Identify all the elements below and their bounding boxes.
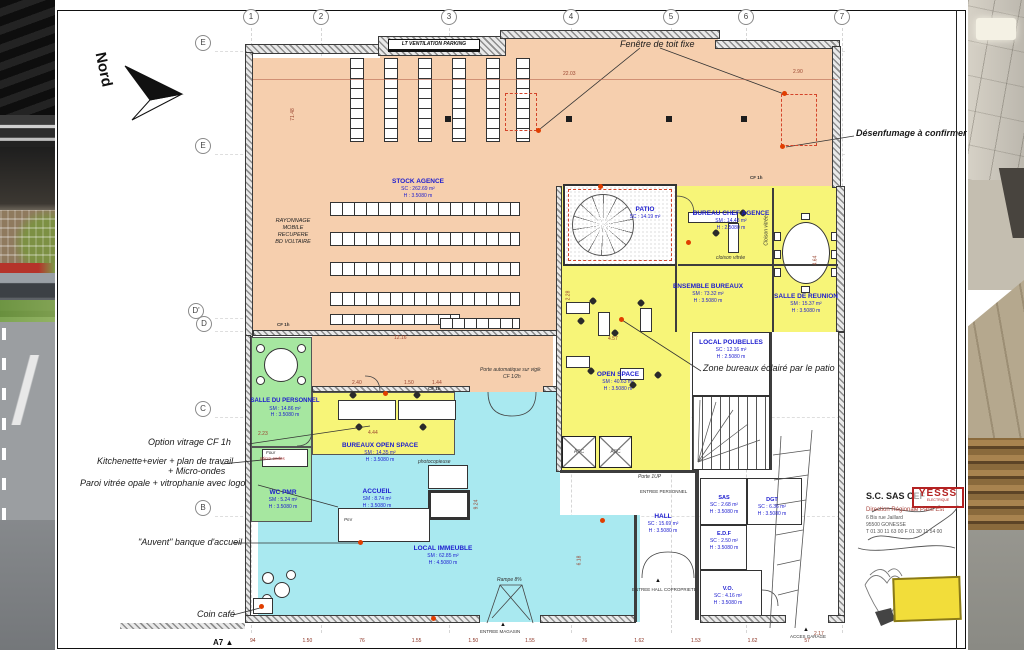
floor-plan-screenshot: ASC ASC (0, 0, 1024, 650)
yesss-stamp: YESSS ELECTRIQUE (912, 487, 964, 508)
grid-bubble-7: 7 (834, 9, 850, 25)
sheet-ref: A7 ▲ (213, 639, 233, 647)
sheet-ref-text: A7 (213, 638, 223, 647)
label-patio: PATIO SC : 14.19 m² (630, 206, 661, 221)
stamp-subtext: ELECTRIQUE (914, 499, 962, 503)
room-area: SM : 8.74 m² (363, 496, 392, 503)
room-height: H : 2.5080 m (693, 225, 770, 232)
annotation-text: Porte 1UP (638, 474, 661, 480)
grid-bubble-B: B (195, 500, 211, 516)
four-label: Four (266, 450, 275, 455)
annotation-rampe: Rampe 8% (497, 578, 522, 583)
dim-228: 2.28 (566, 291, 571, 301)
label-cf1h-a: CF 1h (277, 323, 290, 328)
annotation-porte-auto-cf: CF 1/2h (503, 375, 521, 380)
tb-line1: Direction Régionale Paris Est (866, 507, 944, 513)
annotation-kitchenette: Kitchenette+evier + plan de travail (97, 457, 233, 466)
room-height: H : 3.5080 m (342, 457, 418, 464)
label-cf1h-b: CF 1h (750, 176, 763, 181)
micro-label: Micro-ondes (260, 456, 285, 461)
grid-1: 1 (249, 13, 253, 21)
rayonnage-l1: RAYONNAGE (275, 218, 311, 225)
label-salle-personnel: SALLE DU PERSONNEL SM : 14.86 m² H : 3.5… (250, 398, 319, 419)
label-four: Four (266, 451, 275, 456)
grid-5: 5 (669, 13, 673, 21)
annotation-text: Option vitrage CF 1h (148, 437, 231, 447)
room-height: H : 3.5080 m (710, 509, 739, 516)
annotation-text: CF 1/2h (503, 374, 521, 380)
label-hall: HALL SC : 15.69 m² H : 3.5080 m (648, 513, 679, 534)
label-rayonnage: RAYONNAGE MOBILE RECUPERE BD VOLTAIRE (275, 218, 311, 247)
marker-dot (619, 317, 624, 322)
room-area: SC : 15.69 m² (648, 521, 679, 528)
dim-text: 9.24 (473, 500, 479, 510)
label-salle-reunion: SALLE DE REUNION SM : 15.37 m² H : 3.508… (774, 293, 838, 314)
label-vo: V.O. SC : 4.16 m² H : 3.5080 m (714, 586, 743, 606)
room-height: H : 3.5080 m (392, 193, 444, 200)
marker-dot (383, 391, 388, 396)
annotation-cloison-vitree: cloison vitrée (716, 256, 745, 261)
label-cf1h-c: CF 1h (428, 387, 441, 392)
dim-text: 6.18 (576, 556, 582, 566)
label-micro-ondes: Micro-ondes (260, 457, 285, 462)
dim-150: 1.50 (404, 381, 414, 386)
marker-dot (598, 184, 603, 189)
entrance-triangle-garage: ▲ (803, 627, 809, 633)
label-stock-agence: STOCK AGENCE SC : 262.69 m² H : 3.5080 m (392, 178, 444, 199)
label-local-immeuble: LOCAL IMMEUBLE SM : 62.85 m² H : 4.5080 … (414, 545, 473, 566)
grid-bubble-6: 6 (738, 9, 754, 25)
annotation-text: Kitchenette+evier + plan de travail (97, 456, 233, 466)
annotation-entree-magasin: ENTREE MAGASIN (480, 630, 520, 635)
room-name: LOCAL IMMEUBLE (414, 545, 473, 553)
annotation-paroi-vitree: Paroi vitrée opale + vitrophanie avec lo… (80, 479, 245, 488)
marker-dot (600, 518, 605, 523)
grid-bubble-3: 3 (441, 9, 457, 25)
room-height: H : 3.5080 m (673, 298, 743, 305)
grid-Dp: D' (192, 307, 199, 315)
annotation-coin-cafe: Coin café (197, 610, 235, 619)
dim-value: 1.55 (525, 639, 535, 644)
dim-text: 71.48 (290, 108, 296, 121)
room-name: PATIO (630, 206, 661, 214)
dim-text: 2.28 (565, 291, 571, 301)
annotation-text: "Auvent" banque d'accueil (138, 537, 242, 547)
dim-text: 22.03 (563, 71, 576, 77)
dim-7148: 71.48 (291, 108, 296, 121)
titleblock-phone: T 01 30 11 63 00 F 01 30 11 54 00 (866, 530, 942, 535)
grid-bubble-4: 4 (563, 9, 579, 25)
annotation-text: Fenêtre de toit fixe (620, 39, 695, 49)
room-height: H : 4.5080 m (414, 560, 473, 567)
compass-arrow (125, 66, 182, 120)
dim-value: 1.53 (691, 639, 701, 644)
grid-D: D (201, 320, 207, 328)
dim-text: 4.64 (812, 256, 818, 266)
dim-value: 76 (359, 639, 365, 644)
annotation-text: Zone bureaux éclairé par le patio (703, 363, 835, 373)
label-pmr: Pmr (344, 518, 352, 523)
dim-value: 76 (582, 639, 588, 644)
annotation-text: + Micro-ondes (168, 466, 225, 476)
grid-C: C (200, 405, 206, 413)
room-height: H : 3.5080 m (250, 412, 319, 419)
room-height: H : 3.5080 m (648, 528, 679, 535)
room-name: OPEN SPACE (597, 371, 639, 379)
rayonnage-l3: RECUPERE (275, 232, 311, 239)
label-accueil: ACCUEIL SM : 8.74 m² H : 3.5080 m (363, 488, 392, 509)
dim-290: 2.90 (793, 70, 803, 75)
entrance-triangle-magasin: ▲ (500, 622, 506, 628)
annotation-text: ENTREE MAGASIN (480, 629, 520, 634)
label-local-poubelles: LOCAL POUBELLES SC : 12.16 m² H : 2.5080… (699, 339, 763, 360)
label-bureaux-open-space: BUREAUX OPEN SPACE SM : 14.35 m² H : 3.5… (342, 442, 418, 463)
annotation-text: Coin café (197, 609, 235, 619)
marker-dot (782, 91, 787, 96)
label-dgt: DGT SC : 6.36 m² H : 3.5080 m (758, 497, 787, 517)
handwritten-sticky-note (892, 576, 961, 622)
room-name: WC PMR (269, 489, 298, 497)
room-height: H : 3.5080 m (714, 600, 743, 607)
leader-lines (222, 48, 854, 615)
grid-2: 2 (319, 13, 323, 21)
stair-fan-lines (698, 400, 760, 462)
label-sas: SAS SC : 2.68 m² H : 3.5080 m (710, 495, 739, 515)
annotation-text: ENTREE HALL COPROPRIETE (632, 587, 697, 592)
titleblock-direction: Direction Régionale Paris Est (866, 507, 944, 513)
grid-E1: E (200, 39, 205, 47)
marker-dot (358, 540, 363, 545)
tb-line2: 6 Bis rue Jaillard (866, 515, 903, 521)
dim-144: 1.44 (432, 381, 442, 386)
rayonnage-l2: MOBILE (275, 225, 311, 232)
room-area: SM : 5.24 m² (269, 497, 298, 504)
room-name: V.O. (714, 586, 743, 593)
annotation-micro-ondes: + Micro-ondes (168, 467, 225, 476)
annotation-entree-personnel: ENTREE PERSONNEL (640, 490, 687, 495)
annotation-auvent: "Auvent" banque d'accueil (138, 538, 242, 547)
grid-bubble-1: 1 (243, 9, 259, 25)
annotation-text: ENTREE PERSONNEL (640, 489, 687, 494)
annotation-fenetre-toit: Fenêtre de toit fixe (620, 40, 695, 49)
dim-text: 2.40 (352, 380, 362, 386)
room-name: HALL (648, 513, 679, 521)
room-height: H : 3.5080 m (363, 503, 392, 510)
annotation-text: Porte automatique sur vigik (480, 367, 541, 373)
door-arcs (297, 196, 778, 606)
room-height: H : 3.5080 m (774, 308, 838, 315)
tb-line4: T 01 30 11 63 00 F 01 30 11 54 00 (866, 529, 942, 535)
marker-dot (780, 144, 785, 149)
room-name: LOCAL POUBELLES (699, 339, 763, 347)
dim-value: 1.62 (634, 639, 644, 644)
pmr-label: Pmr (344, 517, 352, 522)
dim-444: 4.44 (368, 431, 378, 436)
dim-223: 2.23 (258, 432, 268, 437)
garage-ramp-lines (770, 430, 812, 628)
room-name: SAS (710, 495, 739, 502)
room-name: ACCUEIL (363, 488, 392, 496)
room-area: SC : 2.68 m² (710, 502, 739, 509)
annotation-photocopieuse: photocopieuse (418, 460, 451, 465)
grid-4: 4 (569, 13, 573, 21)
label-open-space: OPEN SPACE SM : 40.63 m² H : 3.5080 m (597, 371, 639, 392)
building-ramp (487, 585, 533, 623)
room-name: ENSEMBLE BUREAUX (673, 283, 743, 291)
marker-dot (686, 240, 691, 245)
cf-label: CF 1h (277, 322, 290, 327)
grid-E2: E (200, 142, 205, 150)
grid-bubble-D: D (196, 316, 212, 332)
marker-dot (536, 128, 541, 133)
marker-dot (259, 604, 264, 609)
dim-217: 2.17 (814, 632, 824, 637)
dim-value: 1.55 (412, 639, 422, 644)
bottom-dimension-row: 941.50761.551.501.55761.621.531.6257 (250, 639, 810, 644)
dim-240: 2.40 (352, 381, 362, 386)
label-ensemble-bureaux: ENSEMBLE BUREAUX SM : 73.32 m² H : 3.508… (673, 283, 743, 304)
desenfumage-dashed-zone (781, 94, 817, 146)
cf-label: CF 1h (428, 386, 441, 391)
grid-bubble-E2: E (195, 138, 211, 154)
dim-924: 9.24 (474, 500, 479, 510)
annotation-option-vitrage: Option vitrage CF 1h (148, 438, 231, 447)
label-edf: E.D.F SC : 2.50 m² H : 3.5080 m (710, 531, 739, 551)
annotation-text: photocopieuse (418, 459, 451, 465)
room-name: E.D.F (710, 531, 739, 538)
dim-text: 2.23 (258, 431, 268, 437)
grid-7: 7 (840, 13, 844, 21)
label-bureau-chef: BUREAU CHEF AGENCE SM : 14.48 m² H : 2.5… (693, 210, 770, 231)
label-wc-pmr: WC PMR SM : 5.24 m² H : 3.5080 m (269, 489, 298, 510)
room-name: SALLE DE REUNION (774, 293, 838, 301)
grid-bubble-5: 5 (663, 9, 679, 25)
dim-value: 94 (250, 639, 256, 644)
dim-value: 1.62 (748, 639, 758, 644)
dim-text: 1.50 (404, 380, 414, 386)
annotation-entree-hall: ENTREE HALL COPROPRIETE (632, 588, 697, 593)
room-height: H : 3.5080 m (758, 511, 787, 518)
room-name: STOCK AGENCE (392, 178, 444, 186)
annotation-cloison-vitree-v: Cloison vitrée (765, 215, 770, 245)
dim-value: 1.50 (468, 639, 478, 644)
room-height: H : 3.5080 m (710, 545, 739, 552)
titleblock-city: 95500 GONESSE (866, 523, 906, 528)
annotation-text: cloison vitrée (716, 255, 745, 261)
room-area: SC : 6.36 m² (758, 504, 787, 511)
room-area: SM : 40.63 m² (597, 379, 639, 386)
dim-1216: 12.16 (394, 336, 407, 341)
roof-window-dashed-zone (505, 93, 537, 131)
dim-457: 4.57 (608, 337, 618, 342)
annotation-text: Rampe 8% (497, 577, 522, 583)
room-name: BUREAU CHEF AGENCE (693, 210, 770, 218)
rayonnage-l4: BD VOLTAIRE (275, 239, 311, 246)
dim-618: 6.18 (577, 556, 582, 566)
titleblock-address: 6 Bis rue Jaillard (866, 516, 903, 521)
annotation-desenfumage: Désenfumage à confirmer (856, 129, 967, 138)
entrance-triangle-hall: ▲ (655, 578, 661, 584)
annotation-porte-1up: Porte 1UP (638, 475, 661, 480)
grid-bubble-C: C (195, 401, 211, 417)
grid-3: 3 (447, 13, 451, 21)
dim-text: 1.44 (432, 380, 442, 386)
dimension-line (253, 79, 838, 80)
annotation-porte-auto: Porte automatique sur vigik (480, 368, 541, 373)
annotation-text: Paroi vitrée opale + vitrophanie avec lo… (80, 478, 245, 488)
cf-label: CF 1h (750, 175, 763, 180)
annotation-zone-bureaux: Zone bureaux éclairé par le patio (703, 364, 835, 373)
room-area: SC : 14.19 m² (630, 214, 661, 221)
grid-6: 6 (744, 13, 748, 21)
dim-value: 57 (804, 639, 810, 644)
dim-text: 4.57 (608, 336, 618, 342)
room-name: DGT (758, 497, 787, 504)
dim-text: 2.90 (793, 69, 803, 75)
room-height: H : 3.5080 m (597, 386, 639, 393)
grid-B: B (200, 504, 205, 512)
dim-2203: 22.03 (563, 72, 576, 77)
dim-text: 4.44 (368, 430, 378, 436)
room-name: BUREAUX OPEN SPACE (342, 442, 418, 450)
marker-dot (431, 616, 436, 621)
grid-bubble-E1: E (195, 35, 211, 51)
dim-text: 2.17 (814, 631, 824, 637)
grid-bubble-2: 2 (313, 9, 329, 25)
room-area: SC : 4.16 m² (714, 593, 743, 600)
room-height: H : 2.5080 m (699, 354, 763, 361)
room-height: H : 3.5080 m (269, 504, 298, 511)
dim-text: 12.16 (394, 335, 407, 341)
room-name: SALLE DU PERSONNEL (250, 398, 319, 406)
dim-value: 1.50 (303, 639, 313, 644)
room-area: SC : 2.50 m² (710, 538, 739, 545)
annotation-text: Désenfumage à confirmer (856, 128, 967, 138)
dim-464: 4.64 (813, 256, 818, 266)
tb-line3: 95500 GONESSE (866, 522, 906, 528)
annotation-text: Cloison vitrée (764, 215, 770, 245)
